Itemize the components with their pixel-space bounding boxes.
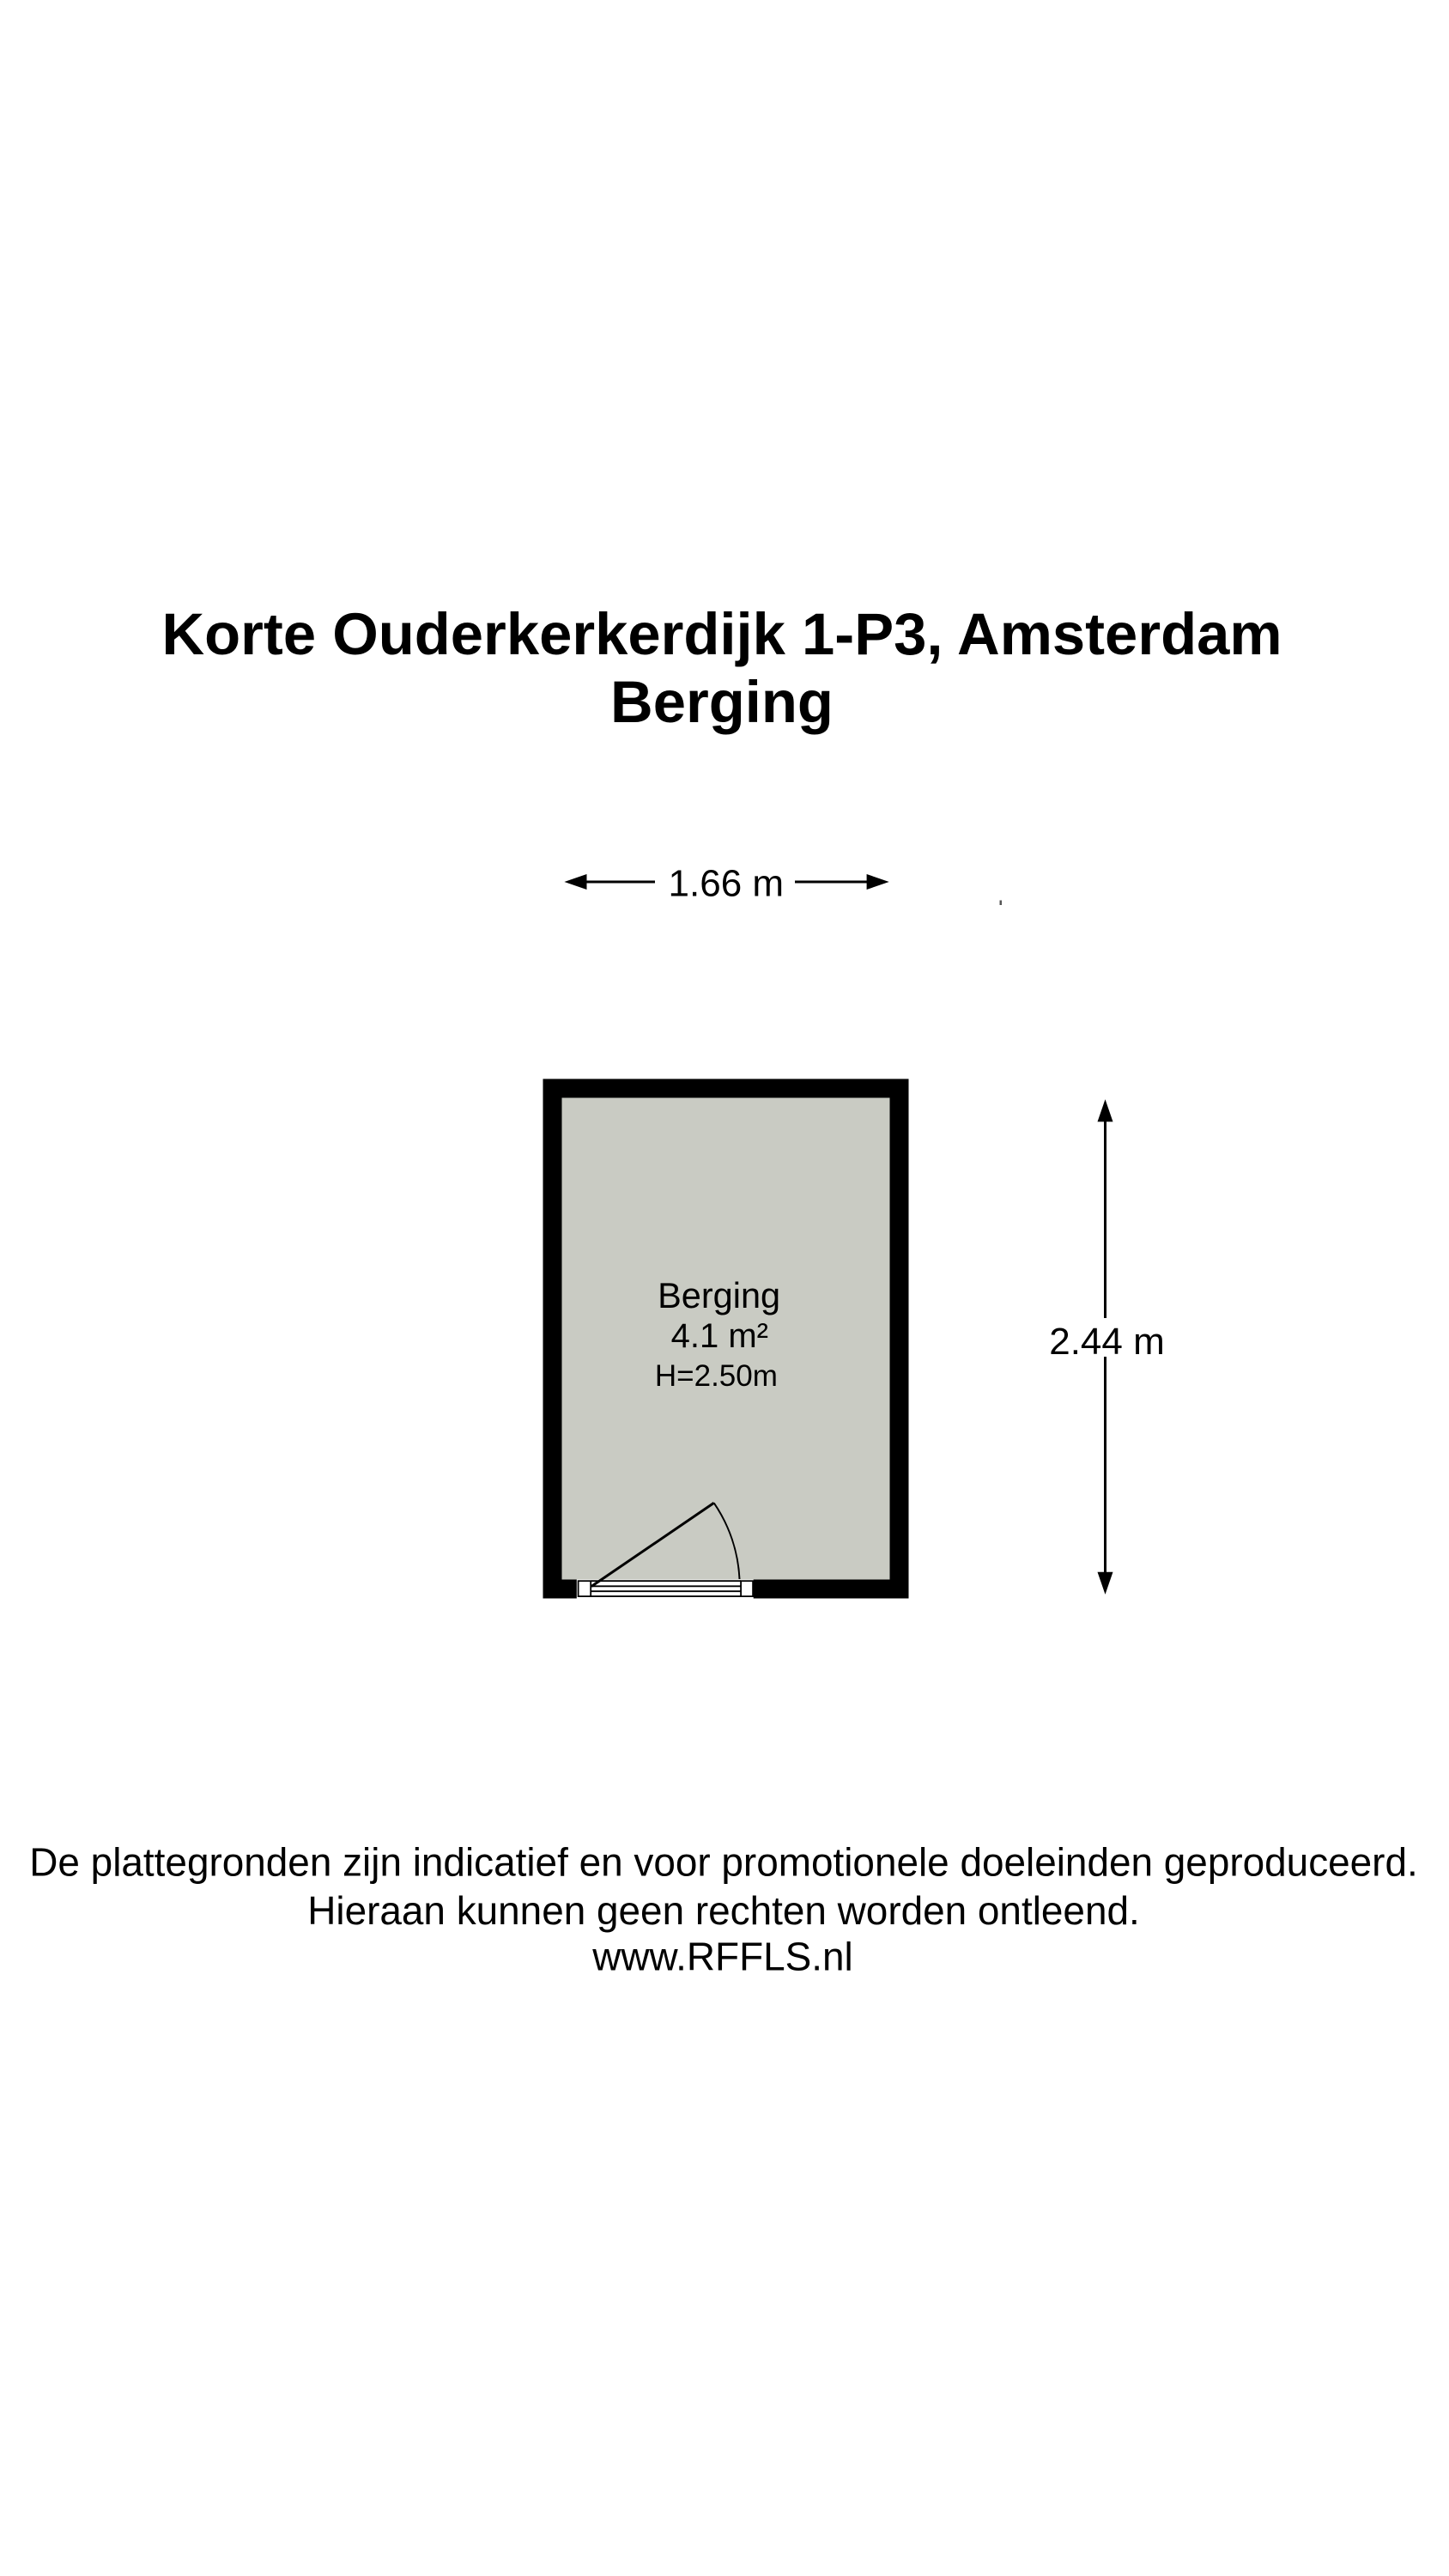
svg-text:Berging: Berging (658, 1275, 780, 1315)
svg-text:Korte Ouderkerkerdijk 1-P3, Am: Korte Ouderkerkerdijk 1-P3, Amsterdam (161, 601, 1282, 667)
svg-text:2.44 m: 2.44 m (1049, 1321, 1165, 1363)
svg-text:Berging: Berging (610, 669, 834, 735)
svg-text:H=2.50m: H=2.50m (655, 1359, 778, 1393)
svg-text:1.66 m: 1.66 m (669, 863, 785, 905)
svg-text:www.RFFLS.nl: www.RFFLS.nl (591, 1935, 852, 1979)
svg-text:4.1 m²: 4.1 m² (671, 1317, 768, 1355)
svg-text:De plattegronden zijn indicati: De plattegronden zijn indicatief en voor… (29, 1840, 1417, 1885)
svg-text:Hieraan kunnen geen rechten wo: Hieraan kunnen geen rechten worden ontle… (307, 1888, 1140, 1933)
